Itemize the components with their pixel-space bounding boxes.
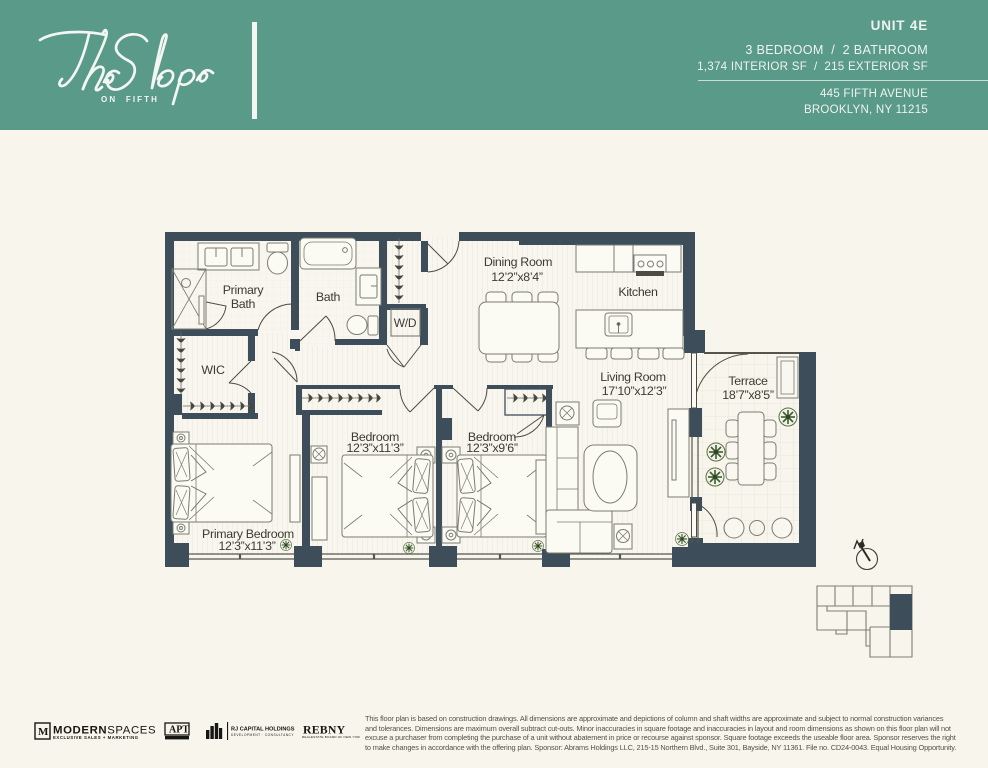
svg-text:17’10”x12’3”: 17’10”x12’3”: [602, 384, 667, 398]
svg-text:REALESTATE BOARD OF NEW YORK: REALESTATE BOARD OF NEW YORK: [302, 735, 360, 739]
svg-text:12’3”x11’3”: 12’3”x11’3”: [218, 539, 275, 553]
svg-text:Bath: Bath: [316, 290, 341, 304]
svg-text:DEVELOPMENT · CONSULTANCY: DEVELOPMENT · CONSULTANCY: [231, 733, 294, 737]
svg-text:Bath: Bath: [231, 297, 256, 311]
svg-text:Primary: Primary: [223, 283, 265, 297]
svg-text:APT: APT: [169, 725, 189, 736]
svg-text:W/D: W/D: [394, 316, 417, 330]
svg-text:Living Room: Living Room: [600, 370, 666, 384]
svg-text:12’2”x8’4”: 12’2”x8’4”: [491, 270, 543, 284]
svg-text:EXCLUSIVE SALES + MARKETING: EXCLUSIVE SALES + MARKETING: [53, 735, 139, 740]
svg-text:12’3”x9’6”: 12’3”x9’6”: [466, 441, 518, 455]
svg-text:M: M: [38, 726, 49, 738]
svg-text:Terrace: Terrace: [728, 374, 768, 388]
svg-text:18’7”x8’5”: 18’7”x8’5”: [722, 388, 774, 402]
svg-text:RJ CAPITAL HOLDINGS: RJ CAPITAL HOLDINGS: [231, 727, 295, 733]
svg-text:Dining Room: Dining Room: [484, 255, 552, 269]
svg-text:12’3”x11’3”: 12’3”x11’3”: [346, 441, 403, 455]
svg-text:WIC: WIC: [201, 363, 225, 377]
svg-text:Kitchen: Kitchen: [618, 285, 658, 299]
